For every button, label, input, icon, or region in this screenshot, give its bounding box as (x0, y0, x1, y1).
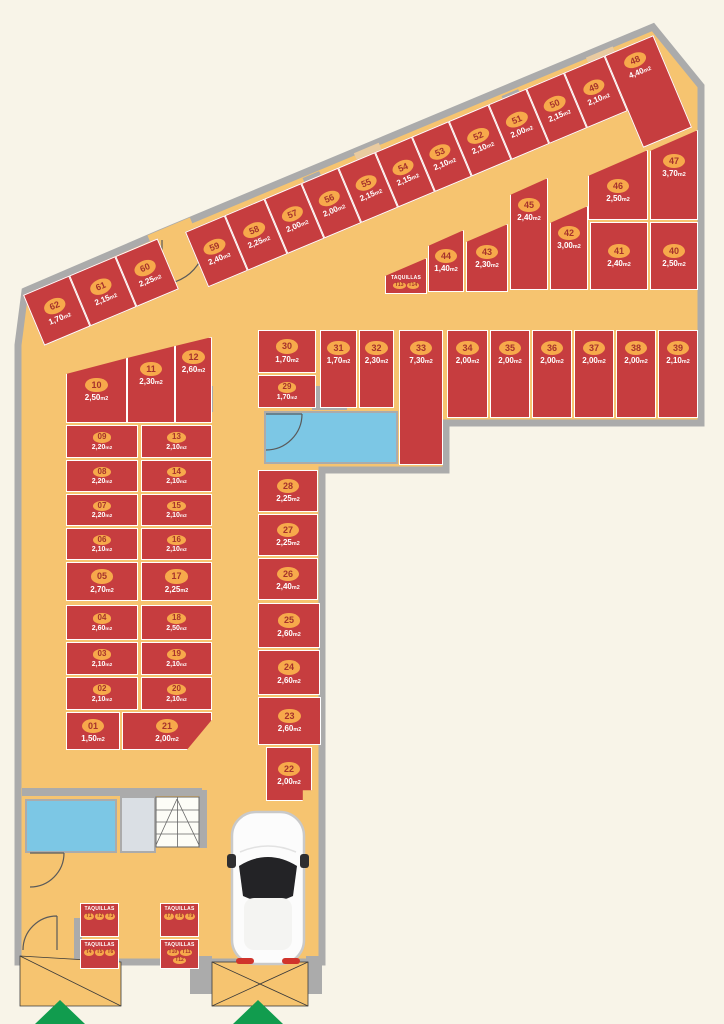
taquilla-tag: T12 (173, 957, 186, 964)
taquilla-tag: T13 (393, 282, 406, 289)
taquillas-label: TAQUILLAS (391, 275, 421, 281)
taquilla-tag: T11 (180, 949, 192, 956)
taquillas-label: TAQUILLAS (164, 906, 194, 912)
taquillas-box-4[interactable]: TAQUILLAST10T11T12 (160, 939, 199, 969)
taquilla-tag: T9 (185, 913, 195, 920)
taquillas-label: TAQUILLAS (164, 942, 194, 948)
taquillas-box-mid[interactable]: TAQUILLAST13T14 (385, 258, 427, 294)
taquillas-box-1[interactable]: TAQUILLAST1T2T3 (80, 903, 119, 937)
taquillas-box-2[interactable]: TAQUILLAST4T5T6 (80, 939, 119, 969)
taquillas-label: TAQUILLAS (84, 942, 114, 948)
taquilla-tag: T14 (407, 282, 420, 289)
taquilla-tag: T3 (105, 913, 115, 920)
taquillas-box-3[interactable]: TAQUILLAST7T8T9 (160, 903, 199, 937)
taquilla-tag: T5 (95, 949, 105, 956)
taquilla-tag: T8 (175, 913, 185, 920)
taquilla-tag: T7 (164, 913, 174, 920)
taquilla-tag: T10 (167, 949, 180, 956)
taquilla-tag: T4 (84, 949, 94, 956)
taquilla-tag: T6 (105, 949, 115, 956)
taquilla-tag: T1 (84, 913, 94, 920)
taquillas-label: TAQUILLAS (84, 906, 114, 912)
taquillas-layer: TAQUILLAST13T14TAQUILLAST1T2T3TAQUILLAST… (0, 0, 724, 1024)
storage-floor-plan: 011,50m2022,10m2032,10m2042,60m2052,70m2… (0, 0, 724, 1024)
taquilla-tag: T2 (95, 913, 105, 920)
